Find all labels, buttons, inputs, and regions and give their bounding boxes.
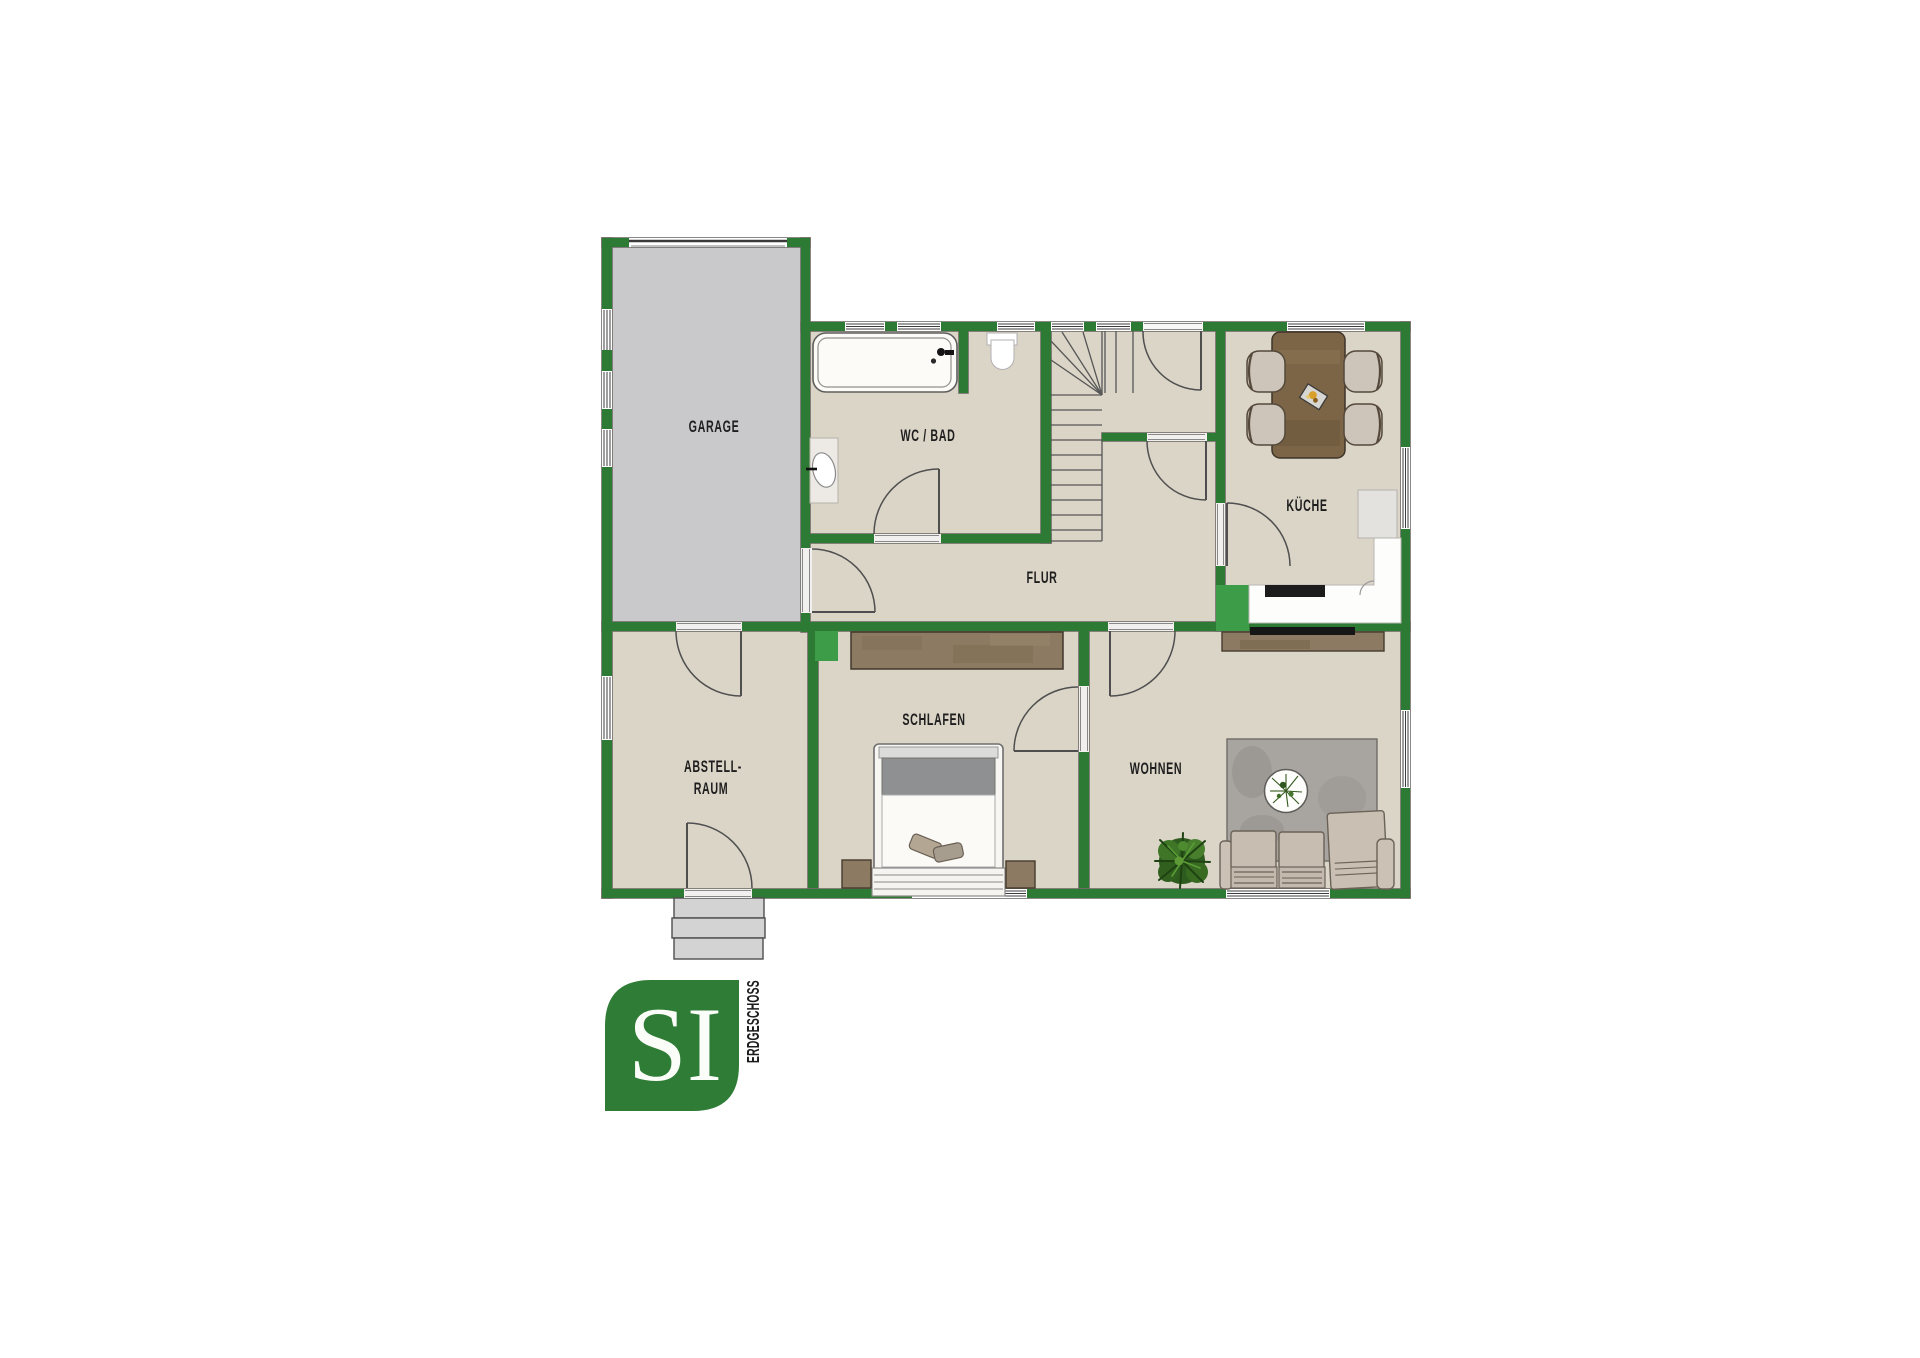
svg-text:WOHNEN: WOHNEN (1130, 760, 1183, 779)
svg-text:ERDGESCHOSS: ERDGESCHOSS (744, 980, 764, 1063)
svg-text:RAUM: RAUM (694, 780, 729, 799)
svg-text:KÜCHE: KÜCHE (1286, 495, 1327, 515)
svg-text:FLUR: FLUR (1026, 569, 1057, 588)
svg-text:ABSTELL-: ABSTELL- (684, 758, 742, 777)
svg-text:SCHLAFEN: SCHLAFEN (902, 711, 965, 730)
svg-text:WC / BAD: WC / BAD (901, 427, 956, 446)
svg-text:GARAGE: GARAGE (689, 418, 740, 437)
svg-text:SI: SI (628, 986, 722, 1103)
